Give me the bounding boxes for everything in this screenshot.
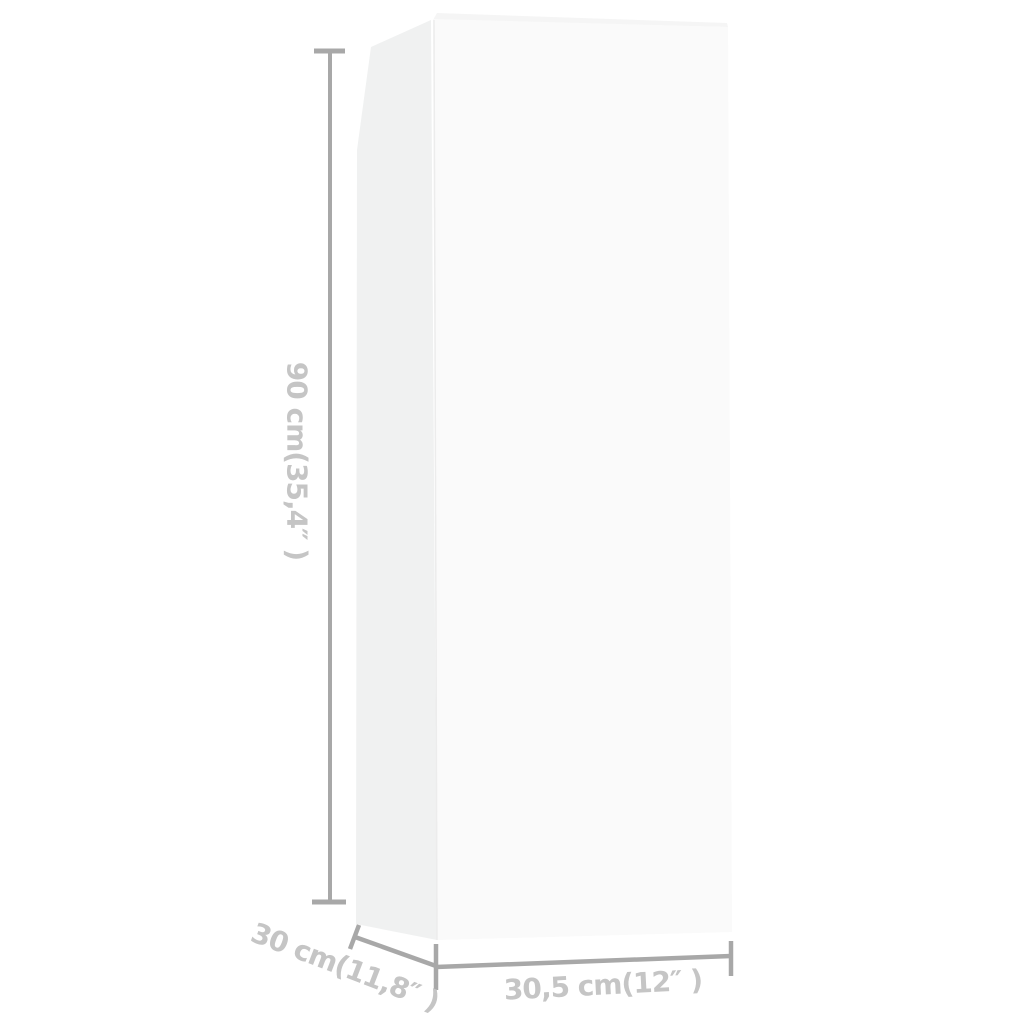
cabinet-and-measures-canvas <box>0 0 1024 1024</box>
cabinet-side-face <box>356 20 437 940</box>
height-dimension-label: 90 cm(35,4″ ) <box>281 362 314 560</box>
cabinet-front-face <box>433 19 732 940</box>
product-dimension-diagram: 90 cm(35,4″ ) 30 cm(11,8″ ) 30,5 cm(12″ … <box>0 0 1024 1024</box>
